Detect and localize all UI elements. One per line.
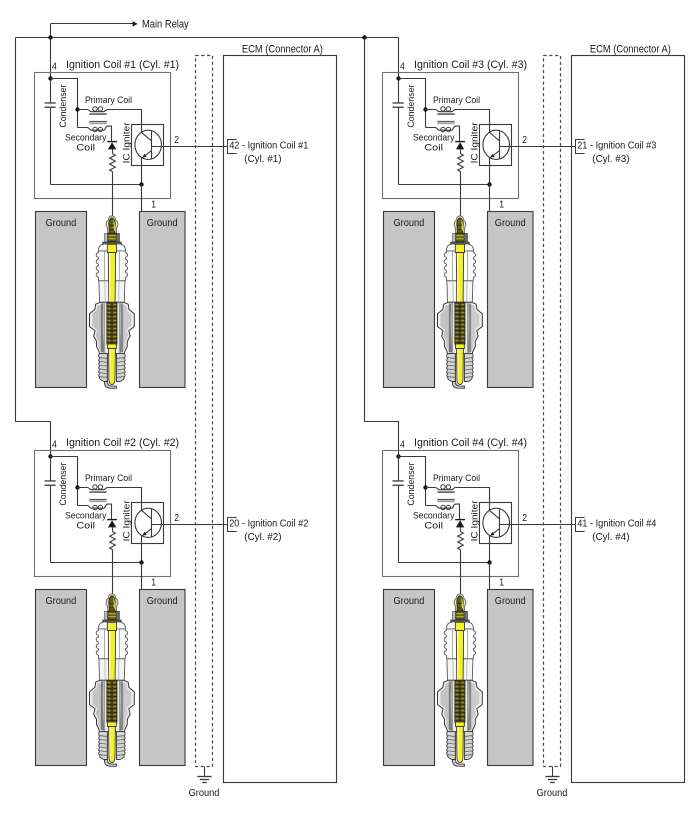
svg-text:Main Relay: Main Relay (142, 18, 189, 30)
svg-text:Ignition Coil #3 (Cyl. #3): Ignition Coil #3 (Cyl. #3) (414, 59, 527, 71)
svg-text:20 - Ignition Coil #2: 20 - Ignition Coil #2 (229, 519, 308, 530)
svg-text:Ignition Coil #2 (Cyl. #2): Ignition Coil #2 (Cyl. #2) (66, 437, 179, 449)
svg-text:41 - Ignition Coil #4: 41 - Ignition Coil #4 (577, 519, 656, 530)
svg-text:(Cyl. #3): (Cyl. #3) (592, 154, 629, 165)
svg-text:Ignition Coil #4 (Cyl. #4): Ignition Coil #4 (Cyl. #4) (414, 437, 527, 449)
svg-text:(Cyl. #4): (Cyl. #4) (592, 532, 629, 543)
svg-text:(Cyl. #2): (Cyl. #2) (244, 532, 281, 543)
svg-text:Ignition Coil #1 (Cyl. #1): Ignition Coil #1 (Cyl. #1) (66, 59, 179, 71)
svg-text:42 - Ignition Coil #1: 42 - Ignition Coil #1 (229, 141, 308, 152)
svg-text:(Cyl. #1): (Cyl. #1) (244, 154, 281, 165)
svg-text:21 - Ignition Coil #3: 21 - Ignition Coil #3 (577, 141, 656, 152)
